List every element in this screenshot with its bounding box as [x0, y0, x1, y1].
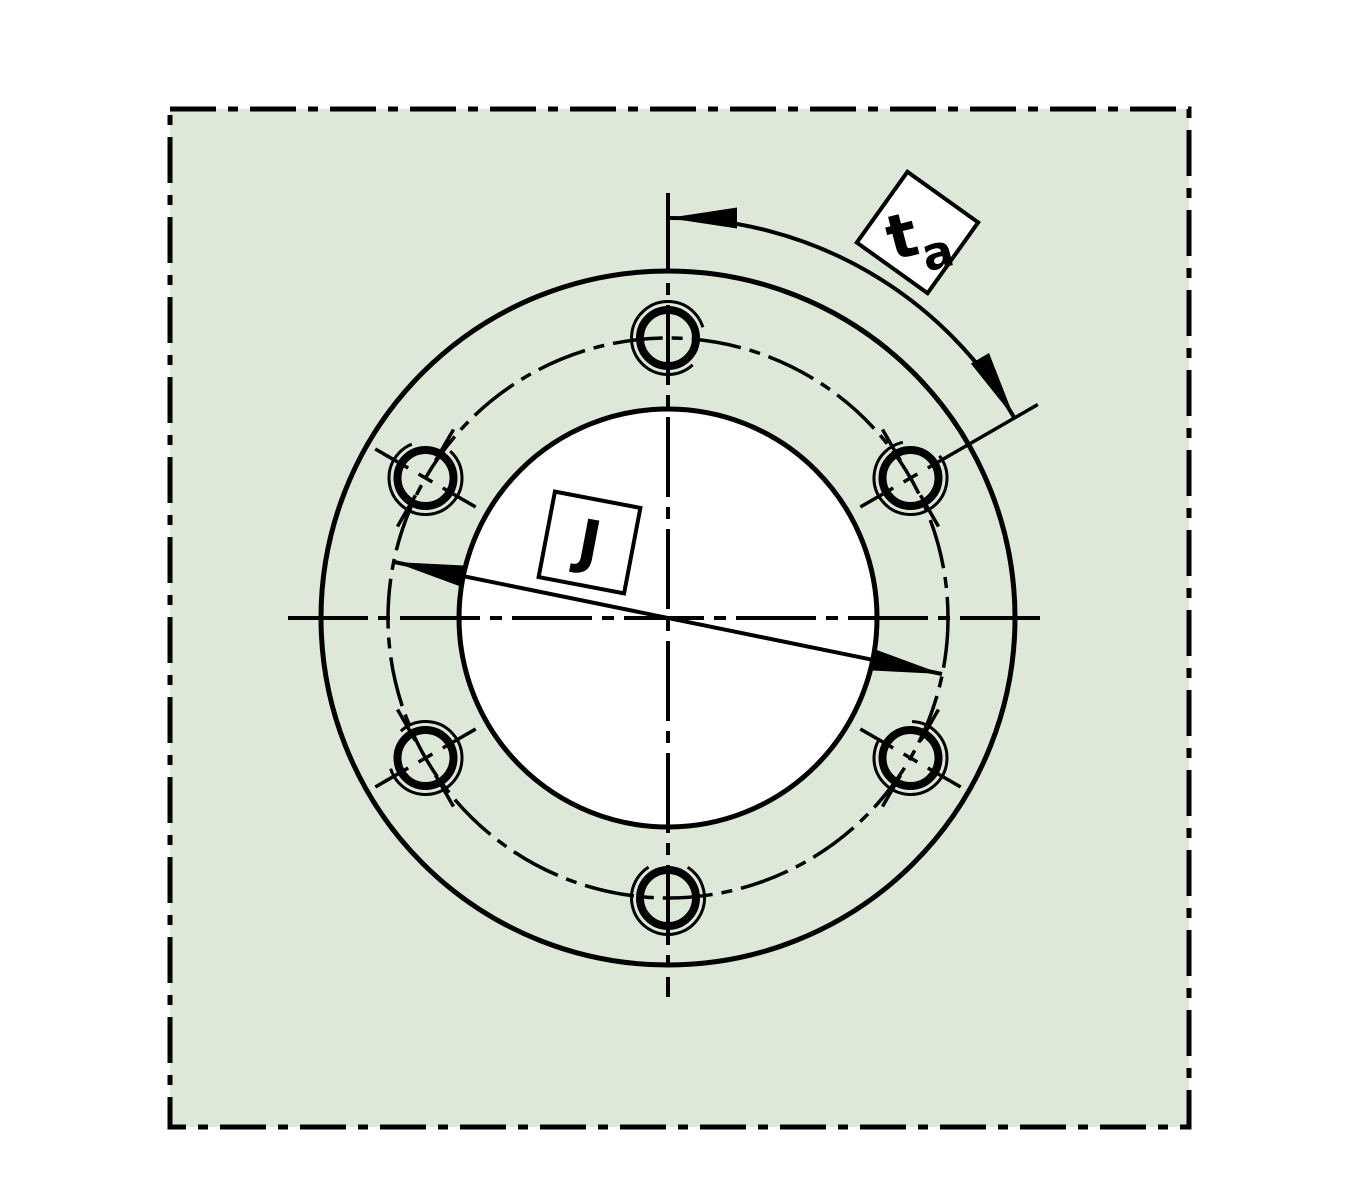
j-dimension-label: J: [573, 511, 606, 574]
j-dimension-label-box: J: [536, 489, 642, 595]
flange-technical-drawing: [0, 0, 1350, 1200]
ta-dimension-label: ta: [880, 195, 954, 270]
drawing-canvas: J ta: [0, 0, 1350, 1200]
